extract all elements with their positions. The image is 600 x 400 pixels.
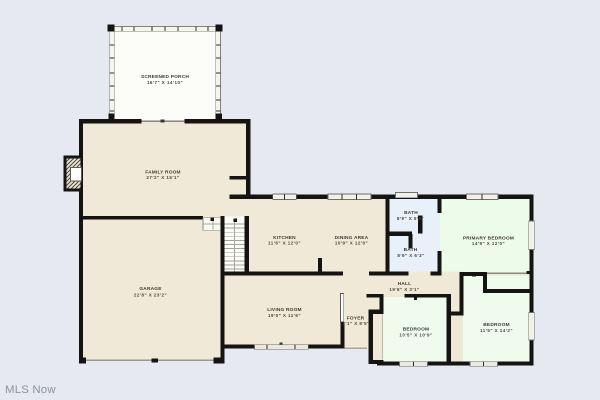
svg-text:10’5" X 10’9": 10’5" X 10’9" (399, 333, 432, 338)
svg-text:19’8" X 3’1": 19’8" X 3’1" (389, 287, 419, 292)
svg-text:10’9" X 12’0": 10’9" X 12’0" (335, 241, 368, 246)
svg-text:8’9" X 6’3": 8’9" X 6’3" (397, 253, 424, 258)
svg-text:11’6" X 12’0": 11’6" X 12’0" (268, 241, 301, 246)
svg-text:14’9" X 12’0": 14’9" X 12’0" (472, 241, 505, 246)
svg-text:27’2" X 15’1": 27’2" X 15’1" (146, 175, 179, 180)
svg-text:3’1" X 8’5": 3’1" X 8’5" (342, 321, 369, 326)
svg-text:16’7" X 14’10": 16’7" X 14’10" (147, 80, 183, 85)
svg-text:8’9" X 5’5": 8’9" X 5’5" (397, 216, 424, 221)
svg-text:MLS Now: MLS Now (5, 384, 56, 396)
svg-text:GARAGE: GARAGE (139, 286, 162, 292)
svg-text:19’0" X 11’6": 19’0" X 11’6" (268, 313, 301, 318)
svg-text:22’8" X 23’2": 22’8" X 23’2" (134, 293, 167, 298)
svg-text:11’5" X 14’2": 11’5" X 14’2" (480, 328, 513, 333)
